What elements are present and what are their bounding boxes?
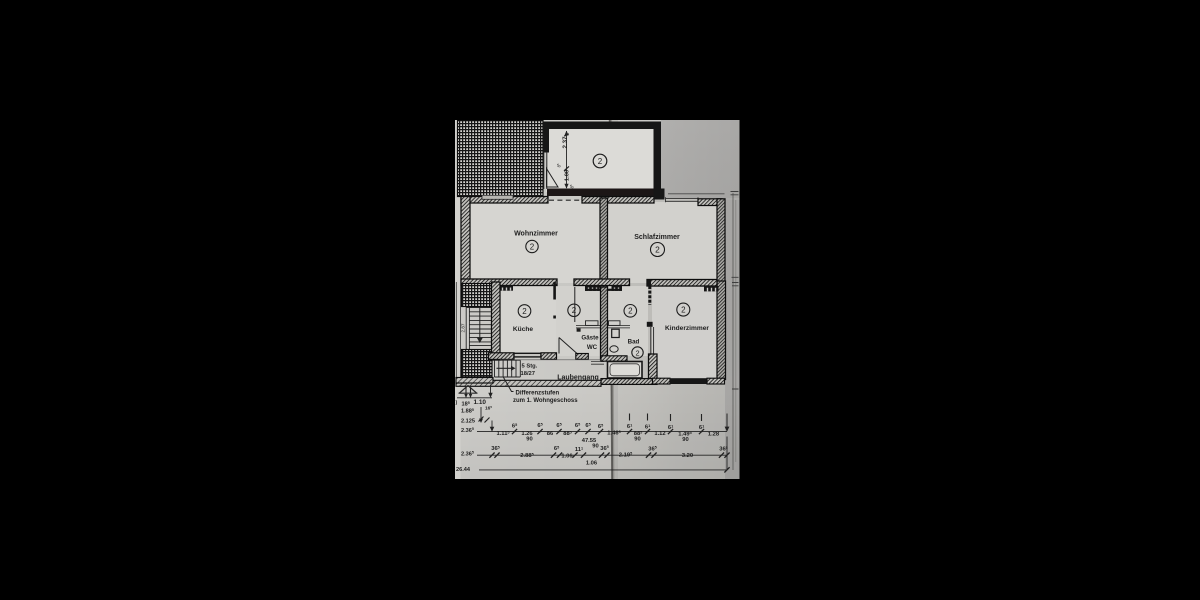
svg-text:Differenzstufen: Differenzstufen bbox=[516, 391, 560, 397]
svg-text:2: 2 bbox=[628, 307, 633, 316]
svg-text:Gäste: Gäste bbox=[581, 335, 599, 342]
svg-text:2: 2 bbox=[681, 306, 686, 315]
svg-text:Küche: Küche bbox=[513, 326, 533, 333]
svg-text:Laubengang: Laubengang bbox=[557, 375, 599, 382]
svg-text:3.20: 3.20 bbox=[682, 453, 693, 459]
svg-text:2: 2 bbox=[598, 157, 603, 166]
svg-text:90: 90 bbox=[682, 437, 688, 443]
svg-text:Wohnzimmer: Wohnzimmer bbox=[514, 231, 558, 238]
svg-text:2: 2 bbox=[530, 242, 535, 251]
svg-text:18/27: 18/27 bbox=[521, 371, 536, 377]
svg-text:26.44: 26.44 bbox=[456, 467, 471, 473]
svg-text:5 Stg.: 5 Stg. bbox=[522, 364, 538, 370]
svg-text:1.10: 1.10 bbox=[474, 399, 487, 406]
svg-text:90: 90 bbox=[634, 437, 640, 443]
svg-text:90: 90 bbox=[592, 443, 598, 449]
svg-text:Kinderzimmer: Kinderzimmer bbox=[665, 325, 709, 332]
svg-text:2.37: 2.37 bbox=[562, 136, 569, 149]
svg-text:1.12: 1.12 bbox=[654, 431, 665, 437]
svg-text:zum 1. Wohngeschoss: zum 1. Wohngeschoss bbox=[513, 398, 578, 404]
svg-text:WC: WC bbox=[587, 344, 598, 351]
svg-text:1.06: 1.06 bbox=[561, 453, 573, 459]
svg-text:2: 2 bbox=[635, 348, 639, 357]
svg-text:2.87: 2.87 bbox=[460, 323, 465, 332]
svg-text:2: 2 bbox=[572, 306, 577, 315]
svg-text:): ) bbox=[456, 400, 458, 406]
svg-text:2: 2 bbox=[522, 307, 527, 316]
svg-text:1.06: 1.06 bbox=[586, 460, 598, 466]
svg-text:2.125: 2.125 bbox=[461, 418, 475, 424]
svg-text:1.28: 1.28 bbox=[708, 431, 720, 437]
svg-text:2: 2 bbox=[655, 245, 660, 255]
svg-text:Bad: Bad bbox=[628, 339, 640, 346]
svg-text:1.00: 1.00 bbox=[565, 170, 571, 181]
svg-text:Schlafzimmer: Schlafzimmer bbox=[634, 234, 680, 241]
svg-text:90: 90 bbox=[526, 436, 532, 442]
svg-text:86: 86 bbox=[547, 431, 554, 437]
